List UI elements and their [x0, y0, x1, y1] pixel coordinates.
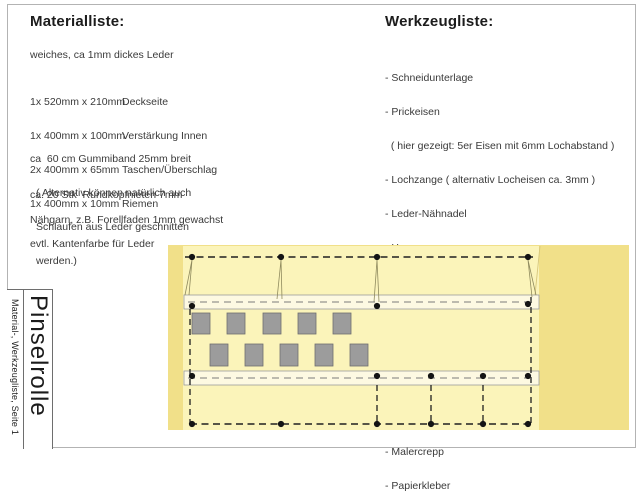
rivet [525, 421, 531, 427]
tool-item: - Schneidunterlage [385, 73, 621, 84]
brush-slot [227, 313, 245, 334]
material-item-row: 1x 520mm x 210mm Deckseite [30, 97, 217, 108]
tool-item: - Malercrepp [385, 447, 621, 458]
rivet [525, 254, 531, 260]
brush-slot [280, 344, 298, 366]
rivet [189, 303, 195, 309]
rivet [374, 254, 380, 260]
rivet [278, 254, 284, 260]
rivet [480, 421, 486, 427]
tool-item: - Leder-Nähnadel [385, 209, 621, 220]
tool-item: - Prickeisen [385, 107, 621, 118]
rivet [428, 421, 434, 427]
title-block: Material-, Werkzeugliste, Seite 1 Pinsel… [7, 289, 53, 449]
brush-slot [210, 344, 228, 366]
inner-reinforcement [183, 246, 539, 430]
rivet [189, 373, 195, 379]
rivet [278, 421, 284, 427]
title-block-project-column: Pinselrolle [24, 290, 52, 449]
brush-roll-drawing [168, 245, 630, 431]
rivet [374, 421, 380, 427]
title-block-subtitle-column: Material-, Werkzeugliste, Seite 1 [7, 290, 24, 449]
project-title: Pinselrolle [24, 295, 52, 449]
material-item-size: 1x 520mm x 210mm [30, 97, 122, 108]
tool-list-title: Werkzeugliste: [385, 13, 493, 30]
brush-slot [263, 313, 281, 334]
note-gummiband-line: ca 60 cm Gummiband 25mm breit [30, 154, 191, 165]
brush-slot [192, 313, 210, 334]
note-naehgarn: Nähgarn, z.B. Forellfaden 1mm gewachst [30, 215, 223, 226]
material-intro: weiches, ca 1mm dickes Leder [30, 50, 174, 61]
note-nieten: ca. 20 Stk Rundkopfnieten 7mm [30, 190, 182, 201]
material-item-name: Deckseite [122, 97, 168, 108]
tool-item: ( hier gezeigt: 5er Eisen mit 6mm Lochab… [385, 141, 621, 152]
rivet [374, 303, 380, 309]
brush-slot [298, 313, 316, 334]
brush-slot [245, 344, 263, 366]
tool-item: - Papierkleber [385, 481, 621, 492]
material-list-title: Materialliste: [30, 13, 125, 30]
brush-slot [350, 344, 368, 366]
rivet [374, 373, 380, 379]
rivet [480, 373, 486, 379]
tool-item: - Lochzange ( alternativ Locheisen ca. 3… [385, 175, 621, 186]
rivet [428, 373, 434, 379]
rivet [525, 373, 531, 379]
title-block-subtitle: Material-, Werkzeugliste, Seite 1 [10, 299, 20, 449]
rivet [525, 301, 531, 307]
note-kantenfarbe: evtl. Kantenfarbe für Leder [30, 239, 154, 250]
brush-slot [315, 344, 333, 366]
brush-slot [333, 313, 351, 334]
rivet [189, 421, 195, 427]
rivet [189, 254, 195, 260]
